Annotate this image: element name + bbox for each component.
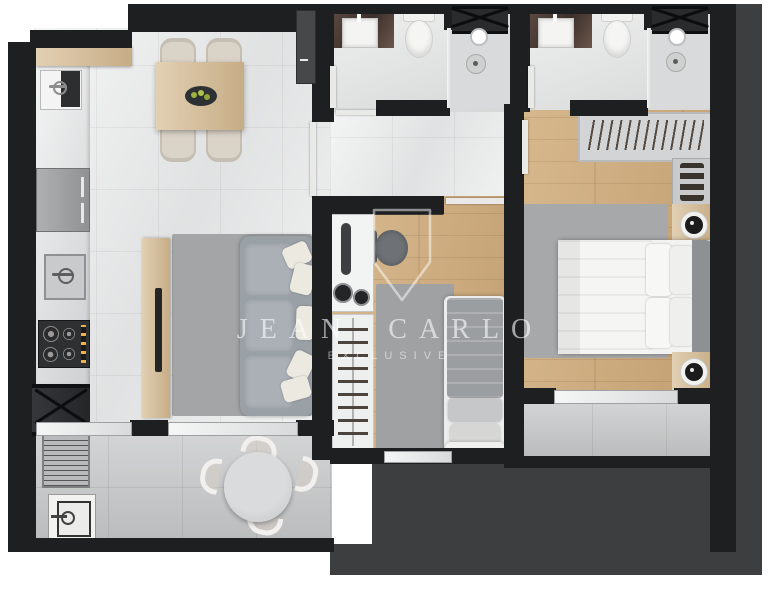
master-balcony-floor [518,400,714,458]
fruit-icon [204,94,210,100]
dining-chair [206,126,242,162]
wall-bath2-bottom [570,100,648,116]
bed-duvet [558,240,652,354]
wall-master-south-right [674,388,712,404]
dining-chair [160,126,196,162]
nightstand-north [672,204,714,244]
wall-terrace-pier [130,420,168,436]
toilet-bowl [405,20,433,58]
bed2-pillow [448,398,502,422]
wardrobe-hangers-icon [586,120,704,150]
burner-icon [43,326,59,342]
wall-kitchen-top [30,30,132,48]
master-bed [558,240,712,354]
brand-shield-icon [362,200,442,310]
bed2-duvet [447,298,503,398]
bed2-pillow [450,424,500,444]
prep-faucet-knob [58,268,74,284]
wall-between-bedrooms [504,104,524,460]
bed-pillow [670,246,694,294]
bath1-shower-head-icon [470,28,488,46]
tv-console [142,238,170,418]
bedroom2-window [384,451,452,463]
lamp-icon [681,212,707,238]
shoe-shelf [672,158,714,206]
bedroom2-door-leaf [446,198,504,204]
bath2-shower-door [528,66,534,108]
master-wardrobe [578,112,716,162]
bath1-stone-counter [330,8,394,48]
kitchen-sink [40,70,82,110]
master-door-leaf [522,120,528,174]
grill [42,434,90,488]
wall-left-outer [8,42,36,548]
burner-icon [63,328,75,340]
burner-icon [63,348,75,360]
wall-balcony-under [504,456,722,468]
bath1-toilet [402,10,434,58]
entry-cabinet [296,10,316,84]
burner-icon [43,347,58,362]
wall-master-south-left [504,388,556,404]
fridge-handle-2 [81,203,84,223]
exterior-slab-bottom [330,455,762,575]
tv [155,288,162,372]
wall-bottom-outer [8,538,334,552]
bath2-shower-glass [647,28,651,108]
ironing-board [341,223,351,275]
kitchen-faucet-knob [53,81,67,95]
wall-right-outer [710,4,736,552]
fruit-bowl [185,86,217,106]
bath1-drain-icon [466,54,486,74]
toilet-bowl [603,20,631,58]
lamp-icon [681,359,707,385]
bath2-shower-head-icon [668,28,686,46]
nightstand-south [672,352,714,390]
terrace-sliding-window [168,422,298,436]
fruit-icon [198,90,204,96]
bath2-drain-icon [666,52,686,72]
terrace-sliding-window [36,422,132,436]
prep-sink [44,254,86,300]
fruit-icon [191,92,197,98]
watermark-tagline: EXCLUSIVE [222,350,558,362]
bath2-sink [538,18,574,48]
drain-dot [673,59,678,64]
bath2-toilet [600,10,632,58]
kitchen-wood-shelf [36,46,132,66]
cooktop-knob-strip [81,325,86,363]
wall-terrace-pier [296,420,334,436]
washer-knob-icon [333,283,353,303]
terrace-sink [48,494,96,542]
round-terrace-table [224,452,292,522]
gas-cooktop [38,320,90,368]
bed-headboard [692,240,712,354]
terrace-faucet-knob [61,511,75,525]
bed-pillow [646,244,672,296]
shoes-icon [680,163,704,201]
hall-door-leaf [310,122,316,196]
master-balcony-window [554,390,678,404]
bed-pillow [670,298,694,346]
bed-pillow [646,298,672,348]
dining-table [156,62,244,130]
second-bedroom-rug [376,284,454,458]
bath1-sink [342,18,378,48]
bath1-shower-door [330,66,336,108]
fridge-handle [81,177,84,197]
bath1-door-leaf [336,110,376,115]
watermark-brand: JEAN CARLO [222,314,558,346]
fridge [36,168,90,232]
wall-bath1-bottom [376,100,450,116]
wall-between-bathrooms [510,4,530,112]
floor-plan-canvas: JEAN CARLO EXCLUSIVE [0,0,774,600]
cabinet-handle [300,59,308,61]
bath2-stone-counter [528,8,592,48]
bath1-shower-glass [447,28,451,108]
drain-dot [473,61,478,66]
